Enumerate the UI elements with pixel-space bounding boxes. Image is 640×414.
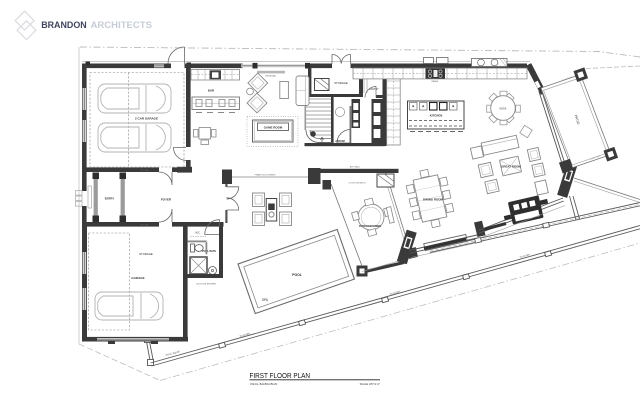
svg-text:FOYER: FOYER — [161, 198, 172, 202]
svg-text:KITCHEN: KITCHEN — [430, 114, 442, 118]
svg-text:GAME ROOM: GAME ROOM — [264, 125, 283, 129]
svg-text:PANTRY: PANTRY — [369, 88, 379, 91]
svg-text:OUTDOOR DINING: OUTDOOR DINING — [359, 225, 381, 228]
svg-text:OUTDOOR SHOWER: OUTDOOR SHOWER — [196, 283, 216, 285]
svg-text:ENTRY: ENTRY — [105, 197, 115, 201]
svg-text:POOL BATH: POOL BATH — [202, 250, 216, 253]
svg-text:SPA: SPA — [262, 298, 269, 302]
svg-text:W.C.: W.C. — [196, 233, 201, 235]
svg-text:2 CAR GARAGE: 2 CAR GARAGE — [135, 117, 158, 121]
svg-text:GREAT ROOM: GREAT ROOM — [501, 165, 521, 169]
svg-text:ARCHITECTS: ARCHITECTS — [91, 20, 153, 31]
svg-text:POOL: POOL — [292, 273, 302, 277]
svg-text:GARAGE: GARAGE — [131, 276, 144, 280]
svg-text:FIRST FLOOR PLAN: FIRST FLOOR PLAN — [250, 371, 311, 380]
svg-text:SCALE 1/8"=1'-0": SCALE 1/8"=1'-0" — [360, 382, 381, 386]
svg-text:PHANTOM SCREENS: PHANTOM SCREENS — [255, 173, 277, 176]
svg-text:BRANDON: BRANDON — [41, 20, 87, 31]
svg-text:1524 E. BALBOA BLVD.: 1524 E. BALBOA BLVD. — [250, 382, 278, 386]
svg-text:ART WALL: ART WALL — [140, 169, 149, 172]
svg-text:DINING ROOM: DINING ROOM — [423, 198, 444, 202]
svg-text:RANGE: RANGE — [432, 80, 439, 83]
svg-text:ART WALL: ART WALL — [350, 165, 361, 168]
svg-text:BAR: BAR — [208, 89, 215, 93]
svg-text:STORAGE: STORAGE — [139, 252, 153, 256]
svg-text:STORAGE: STORAGE — [334, 81, 348, 85]
svg-text:MEDIA WALL: MEDIA WALL — [265, 74, 277, 77]
svg-text:NOOK: NOOK — [500, 109, 507, 111]
svg-text:OUTDOOR MECH: OUTDOOR MECH — [348, 183, 366, 185]
svg-text:ART WALL: ART WALL — [140, 223, 149, 226]
